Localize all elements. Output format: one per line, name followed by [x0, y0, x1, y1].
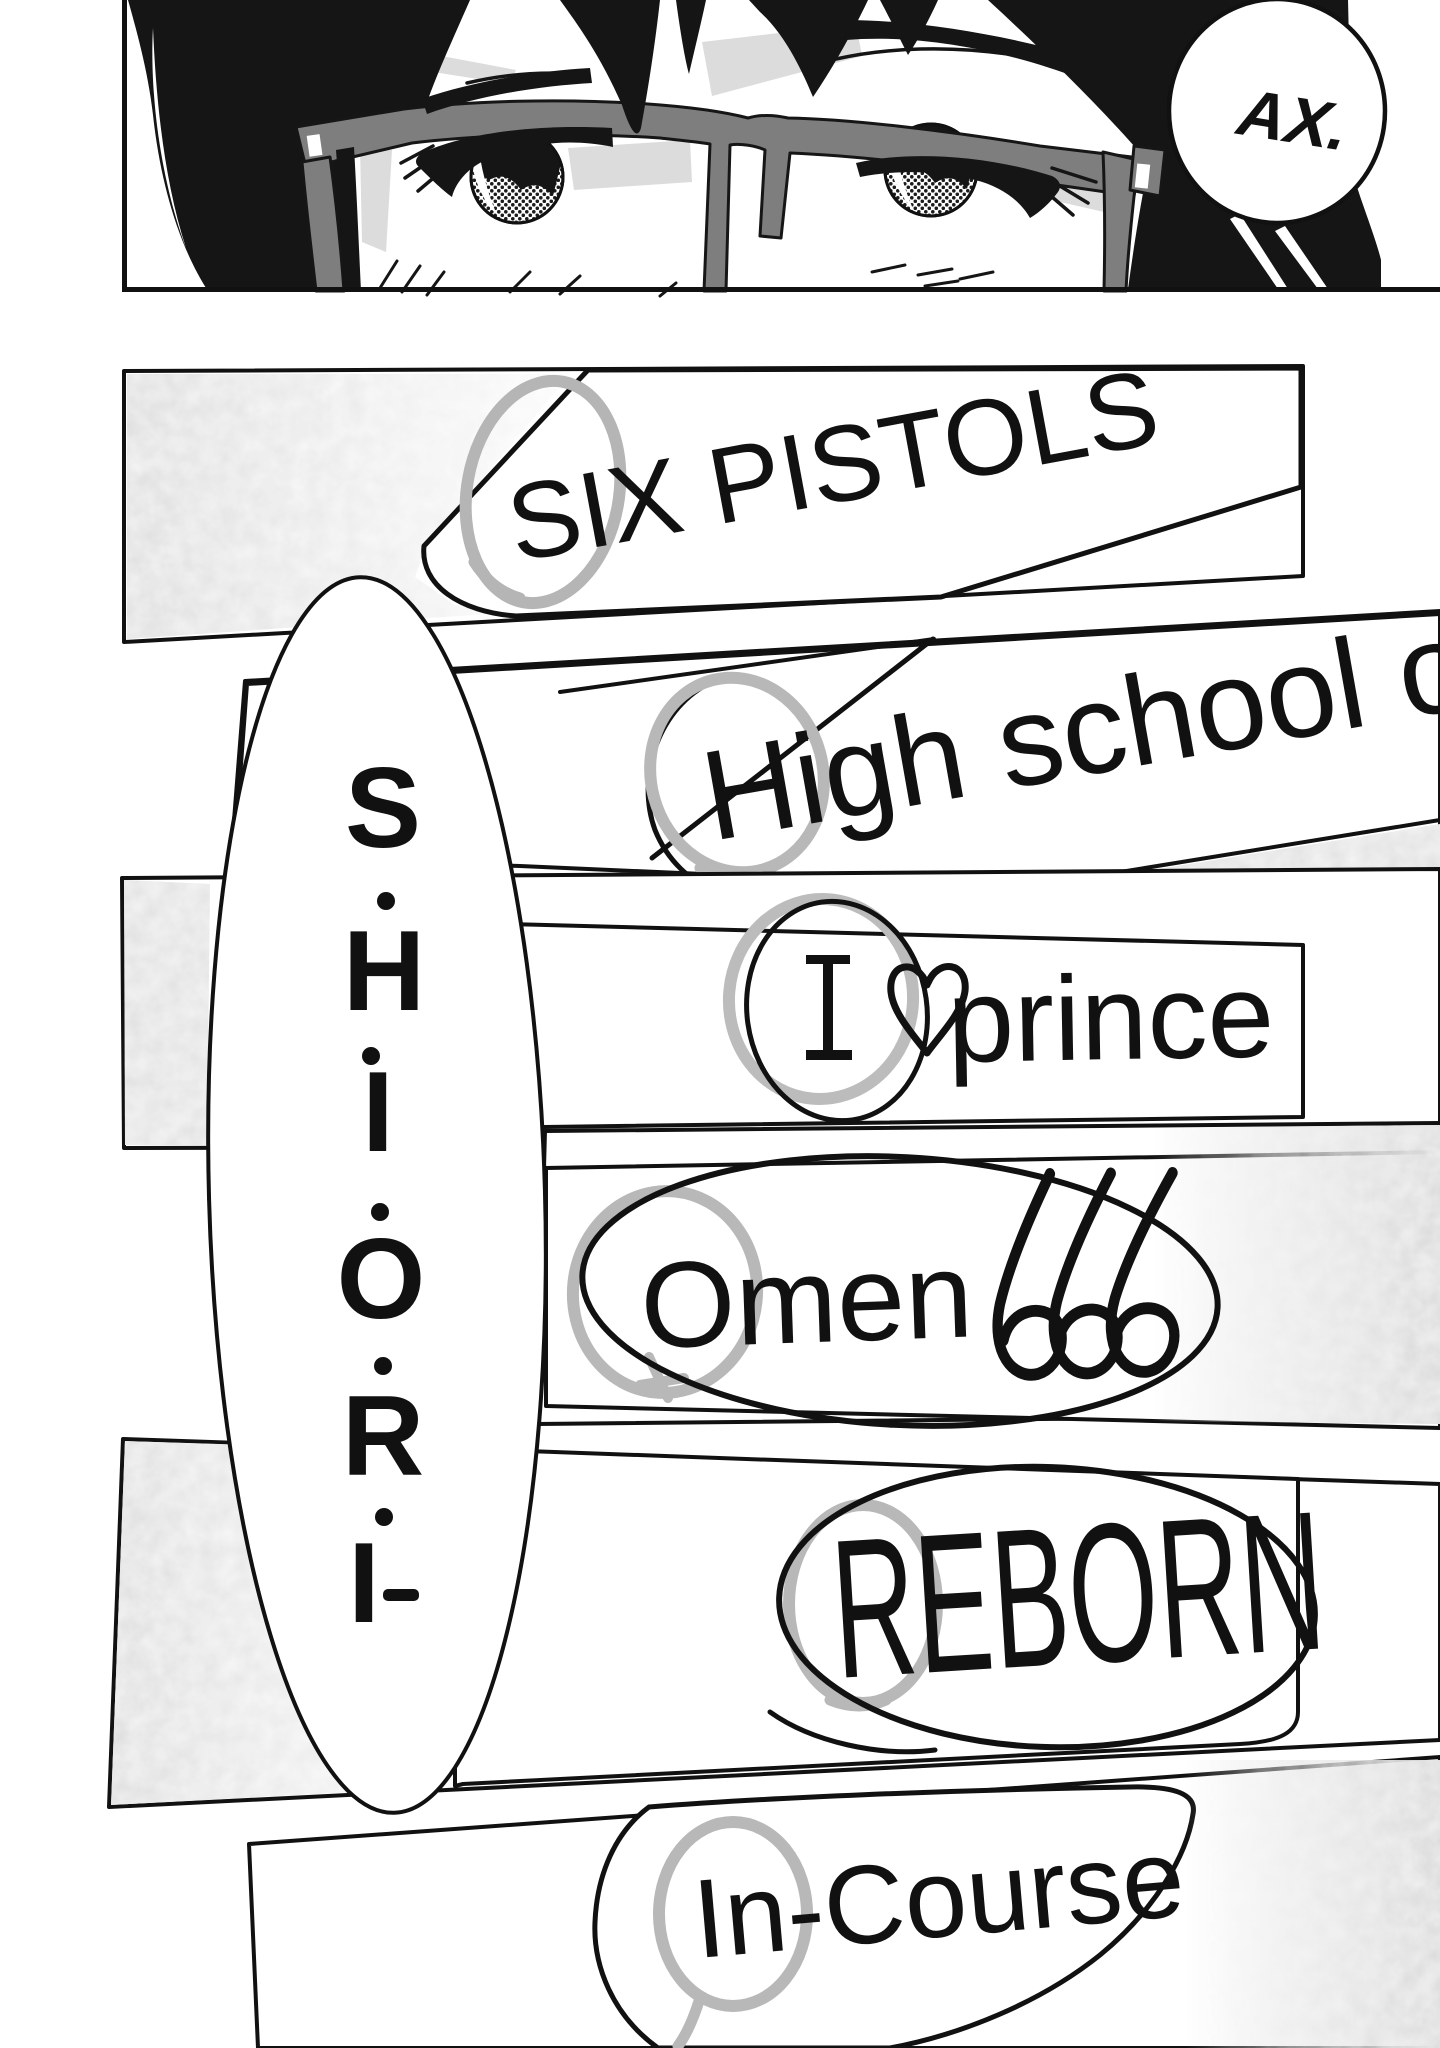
svg-text:I: I — [348, 1520, 380, 1647]
svg-text:R: R — [342, 1373, 424, 1500]
svg-text:O: O — [337, 1216, 426, 1343]
svg-text:REBORN: REBORN — [826, 1470, 1330, 1721]
svg-text:prince: prince — [946, 948, 1275, 1088]
svg-text:I: I — [362, 1049, 394, 1176]
svg-text:Omen: Omen — [638, 1226, 975, 1374]
svg-text:H: H — [343, 908, 425, 1035]
svg-text:S: S — [345, 745, 421, 872]
